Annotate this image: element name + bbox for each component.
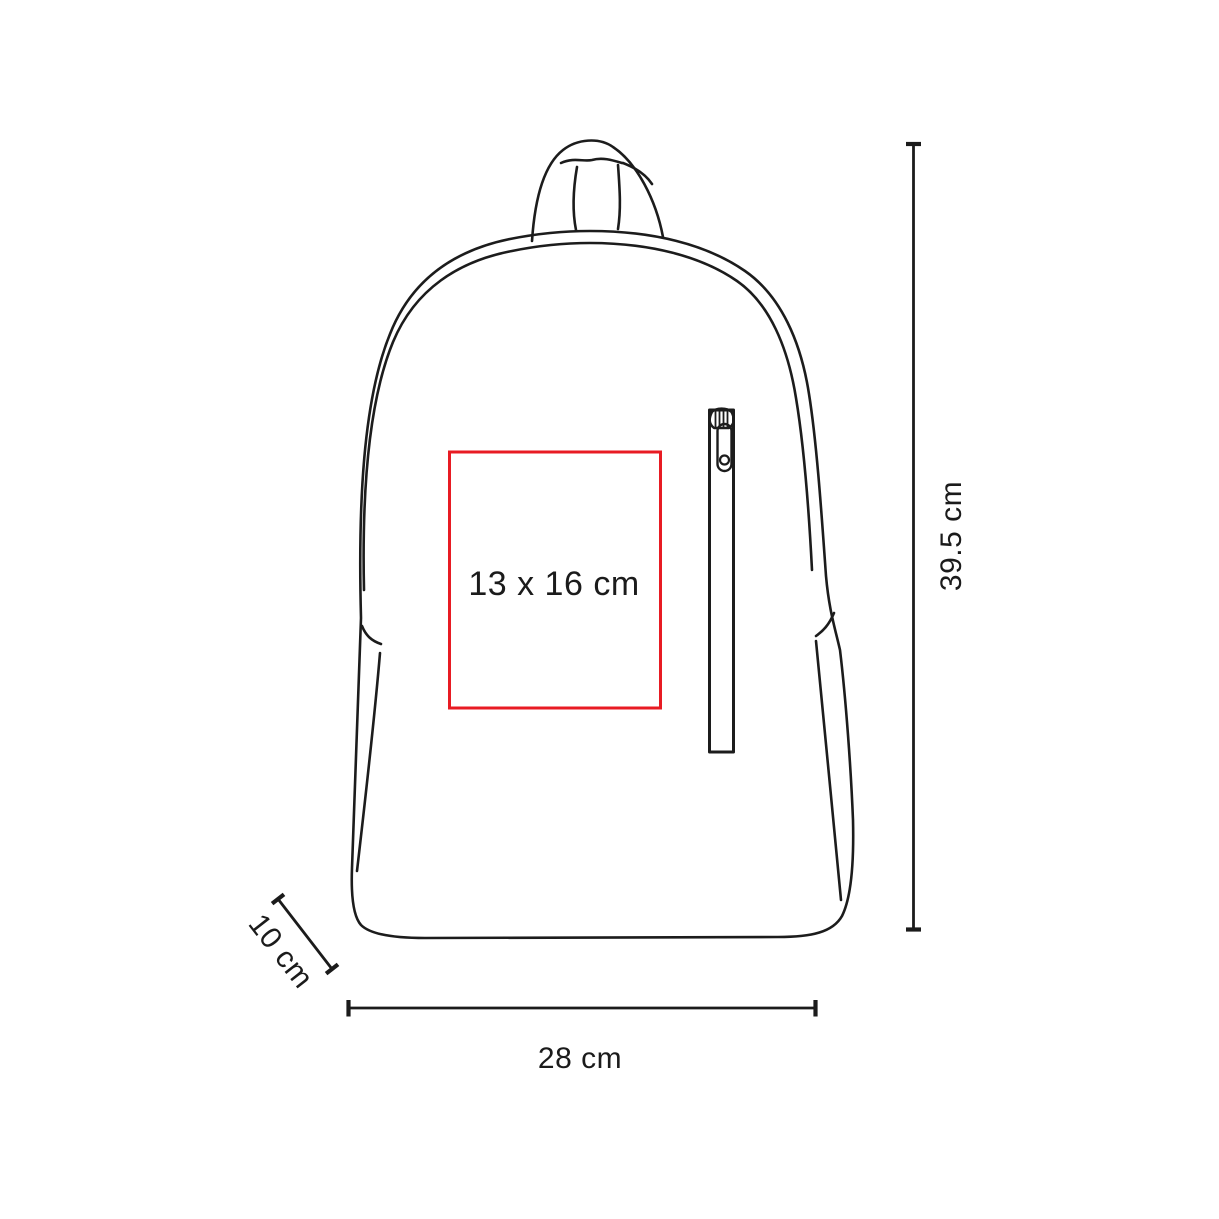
height-dimension-label: 39.5 cm: [935, 481, 968, 591]
zipper-pull-hole: [720, 456, 729, 465]
handle-inner-right: [618, 165, 620, 229]
handle-inner-left: [574, 167, 578, 230]
backpack-drawing-icon: [352, 141, 853, 938]
depth-dimension-label: 10 cm: [242, 908, 320, 995]
handle-outline: [532, 141, 663, 241]
print-area: 13 x 16 cm: [450, 452, 661, 708]
width-dimension: 28 cm: [349, 1000, 816, 1075]
right-gusset-seam: [816, 641, 841, 900]
width-dimension-label: 28 cm: [538, 1042, 622, 1075]
backpack-dimension-figure: 13 x 16 cm 39.5 cm 28 cm 10 cm: [0, 0, 1219, 1219]
handle-icon: [532, 141, 663, 241]
backpack-front-seam: [364, 243, 812, 590]
depth-dimension: 10 cm: [242, 894, 338, 994]
height-dimension: 39.5 cm: [906, 144, 968, 930]
right-gusset-arc: [816, 613, 834, 636]
handle-inner-top: [561, 159, 622, 163]
print-area-label: 13 x 16 cm: [468, 565, 639, 603]
product-dimension-diagram: 13 x 16 cm 39.5 cm 28 cm 10 cm: [0, 0, 1219, 1219]
left-gusset-seam: [357, 653, 380, 871]
left-gusset-arc: [362, 626, 381, 644]
zipper-icon: [710, 409, 734, 752]
